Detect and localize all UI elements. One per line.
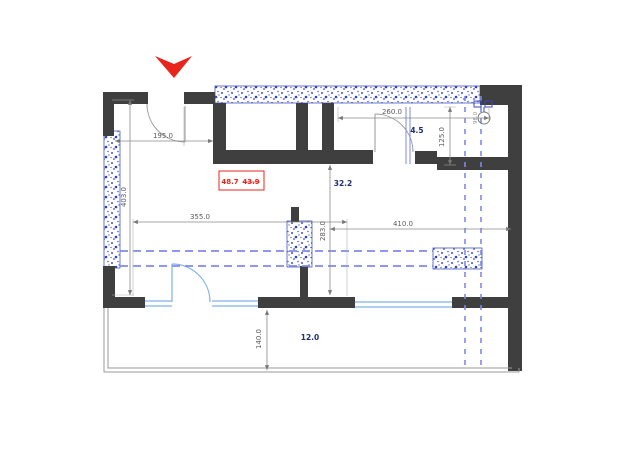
dimension-labels: 195.0 403.0 355.0 283.0 410.0 260.0 125.… [120,108,446,349]
window-segment [355,302,452,307]
bathroom-door-arc [375,114,413,152]
dim-text-410: 410.0 [393,220,413,228]
wall-right [508,85,522,371]
hatch-center-column [287,221,312,267]
total-area-box: 48.7 43.9 [219,171,264,190]
dim-text-283: 283.0 [319,221,327,241]
wall-shaft-right [296,103,308,152]
dim-text-260: 260.0 [382,108,402,116]
hatch-top-band [215,86,480,103]
dim-text-125: 125.0 [438,127,446,147]
wall-bottom-seg1 [103,297,145,308]
wall-bath-bottom [437,157,508,170]
hatch-right-block [433,248,482,269]
window-segment [212,301,258,306]
wall-segment [184,92,215,104]
room-label-bathroom: 4.5 [410,126,423,135]
dim-text-195: 195.0 [153,132,173,140]
area-total-value: 48.7 [221,178,238,186]
wall-shaft-bottom [213,150,373,164]
entrance-arrow-icon [155,56,192,78]
room-label-balcony: 12.0 [301,333,320,342]
wall-column-stem-top [291,207,299,222]
hatched-walls [104,86,482,269]
dim-text-403: 403.0 [120,187,128,207]
hatch-left-strip [104,131,120,268]
area-previous-value: 43.9 [242,178,259,186]
floor-plan: 98.0 195.0 403.0 355.0 283.0 410.0 260.0… [0,0,640,461]
wall-bath-left [322,103,334,152]
wall-bottom-seg2 [258,297,355,308]
door-swings [147,104,413,152]
wall-column-stem-bottom [300,266,308,297]
room-label-living: 32.2 [334,179,353,188]
wall-segment [103,92,114,136]
dim-text-355: 355.0 [190,213,210,221]
wall-bottom-seg3 [452,297,508,308]
window-segment [145,301,172,306]
walls [103,85,522,371]
extension-line [338,107,489,122]
balcony-door-arc [172,264,210,302]
dim-text-140: 140.0 [255,329,263,349]
floor-plan-canvas: 98.0 195.0 403.0 355.0 283.0 410.0 260.0… [0,0,640,461]
wall-bath-step [415,151,437,164]
